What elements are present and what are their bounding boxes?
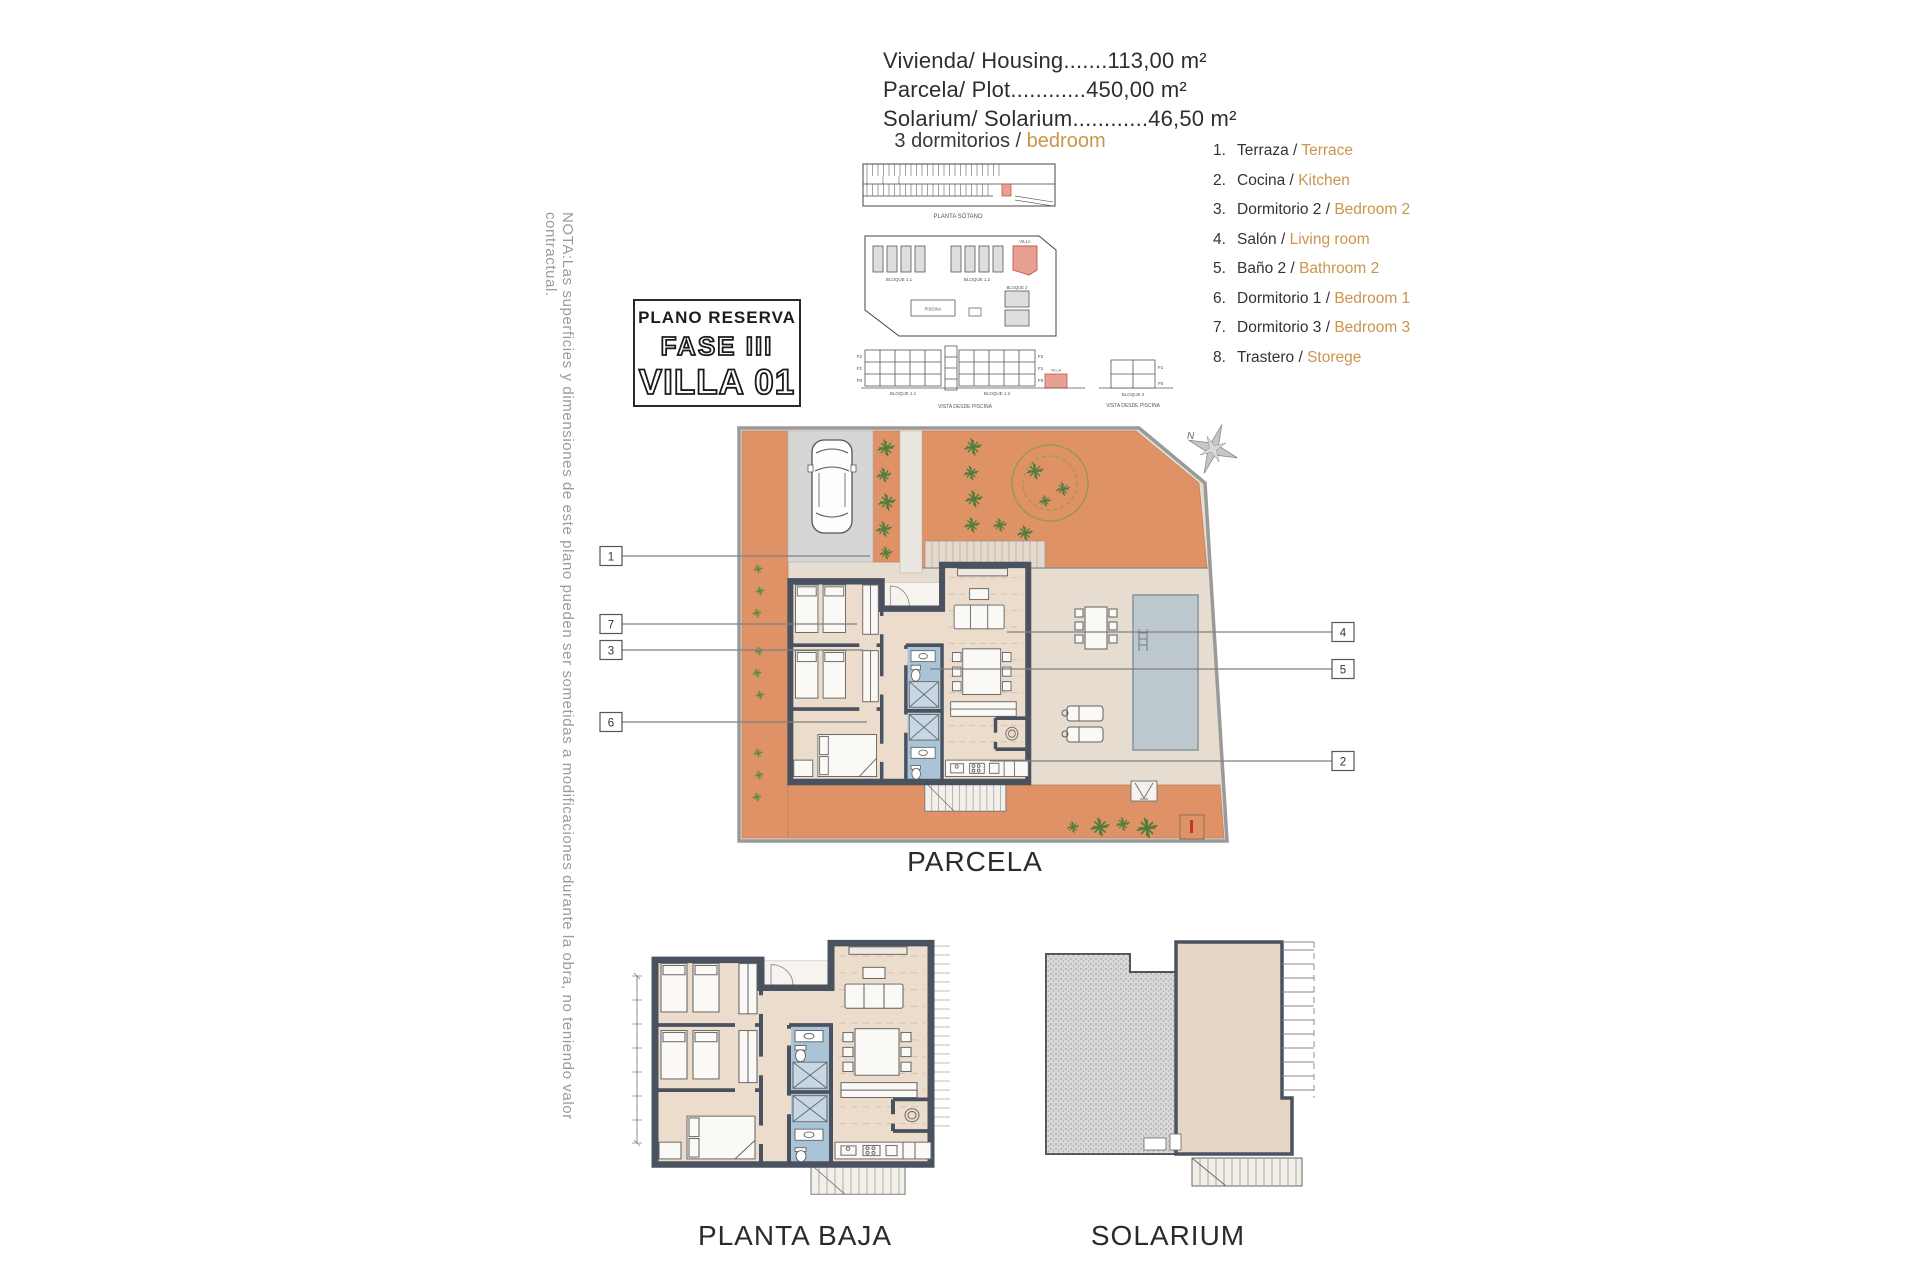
- legend-item-trastero: 8.Trastero / Storege: [1213, 349, 1410, 369]
- outdoor-shower: [1131, 781, 1157, 801]
- piscina-label: PISCINA: [925, 307, 942, 312]
- solarium-terrace: [1176, 942, 1292, 1154]
- villa-site-label: VILLA: [1019, 239, 1031, 244]
- pool: [1133, 595, 1198, 750]
- svg-text:F0: F0: [857, 378, 863, 383]
- room-legend: 1.Terraza / Terrace 2.Cocina / Kitchen 3…: [1213, 142, 1410, 378]
- callout-4: 4: [1340, 628, 1347, 640]
- svg-text:F2: F2: [857, 354, 863, 359]
- storage-box: [1180, 815, 1204, 839]
- solarium-stairs: [1192, 1158, 1302, 1186]
- bloque-11-label: BLOQUE 1.1: [886, 277, 913, 282]
- callout-6: 6: [608, 718, 614, 730]
- elev-villa-marker-label: VILLA: [1051, 369, 1062, 373]
- site-plan: VILLA BLOQUE 1.1 BLOQUE 1.2 BLOQUE 2 PIS…: [865, 236, 1056, 336]
- legend-item-dormitorio2: 3.Dormitorio 2 / Bedroom 2: [1213, 201, 1410, 221]
- svg-text:F0: F0: [1158, 381, 1164, 386]
- vista-piscina-caption-left: VISTA DESDE PISCINA: [938, 404, 992, 410]
- terrace-hatch: [933, 942, 950, 1136]
- bedrooms-label-es: 3 dormitorios /: [894, 130, 1021, 152]
- bloque-2-label: BLOQUE 2: [1007, 285, 1029, 290]
- villa-unit: [1013, 246, 1037, 275]
- compass-n-label: N: [1187, 431, 1195, 442]
- villa-house: [790, 565, 1028, 811]
- area-summary: Vivienda/ Housing.......113,00 m² Parcel…: [883, 46, 1237, 133]
- svg-text:F1: F1: [1038, 366, 1044, 371]
- elevation-views: [861, 346, 1173, 390]
- parcela-label: PARCELA: [845, 846, 1105, 878]
- parcela-plan: N 1 7 3 6 4 5 2: [595, 423, 1365, 858]
- elev-bloque2-caption: BLOQUE 2: [1122, 392, 1145, 397]
- housing-area-line: Vivienda/ Housing.......113,00 m²: [883, 46, 1237, 75]
- plot-area-line: Parcela/ Plot............450,00 m²: [883, 75, 1237, 104]
- villa-number-label: VILLA 01: [635, 363, 799, 403]
- solarium-plan: [1030, 928, 1330, 1200]
- site-overview-diagrams: PLANTA SÓTANO VILLA BLOQUE 1.1 BLOQUE 1.…: [853, 150, 1208, 418]
- callout-1: 1: [608, 552, 614, 564]
- callout-5: 5: [1340, 665, 1346, 677]
- legend-item-bano2: 5.Baño 2 / Bathroom 2: [1213, 260, 1410, 280]
- house-ground-floor: [655, 943, 931, 1194]
- car: [808, 440, 856, 533]
- basement-caption: PLANTA SÓTANO: [933, 213, 982, 220]
- roof-gravel-area: [1046, 954, 1176, 1154]
- svg-text:F2: F2: [1038, 354, 1044, 359]
- legend-item-terraza: 1.Terraza / Terrace: [1213, 142, 1410, 162]
- callout-2: 2: [1340, 757, 1346, 769]
- title-box: PLANO RESERVA FASE III VILLA 01: [633, 299, 801, 407]
- dimension-ruler: [632, 973, 642, 1146]
- elev-bloque11-caption: BLOQUE 1.1: [890, 391, 917, 396]
- outdoor-dining: [1075, 607, 1117, 649]
- plan-type-label: PLANO RESERVA: [635, 308, 799, 328]
- callout-3: 3: [608, 646, 614, 658]
- disclaimer-note: NOTA:Las superficies y dimensiones de es…: [542, 212, 576, 1122]
- basement-plan: [863, 164, 1055, 206]
- planta-baja-label: PLANTA BAJA: [665, 1220, 925, 1252]
- legend-item-dormitorio3: 7.Dormitorio 3 / Bedroom 3: [1213, 319, 1410, 339]
- pergola: [1282, 942, 1314, 1098]
- svg-text:F0: F0: [1038, 378, 1044, 383]
- bloque-12-label: BLOQUE 1.2: [964, 277, 991, 282]
- svg-text:F1: F1: [857, 366, 863, 371]
- elev-bloque12-caption: BLOQUE 1.2: [984, 391, 1011, 396]
- small-structure: [969, 308, 981, 316]
- svg-text:F1: F1: [1158, 365, 1164, 370]
- plan-sheet: NOTA:Las superficies y dimensiones de es…: [0, 0, 1920, 1280]
- vista-piscina-caption-right: VISTA DESDE PISCINA: [1106, 403, 1160, 409]
- legend-item-cocina: 2.Cocina / Kitchen: [1213, 172, 1410, 192]
- planta-baja-plan: [610, 928, 950, 1200]
- solarium-area-line: Solarium/ Solarium............46,50 m²: [883, 104, 1237, 133]
- legend-item-dormitorio1: 6.Dormitorio 1 / Bedroom 1: [1213, 290, 1410, 310]
- bedrooms-label-en: bedroom: [1027, 130, 1106, 152]
- solarium-label: SOLARIUM: [1038, 1220, 1298, 1252]
- walkway: [900, 431, 922, 573]
- legend-item-salon: 4.Salón / Living room: [1213, 231, 1410, 251]
- phase-label: FASE III: [635, 331, 799, 362]
- callout-7: 7: [608, 620, 614, 632]
